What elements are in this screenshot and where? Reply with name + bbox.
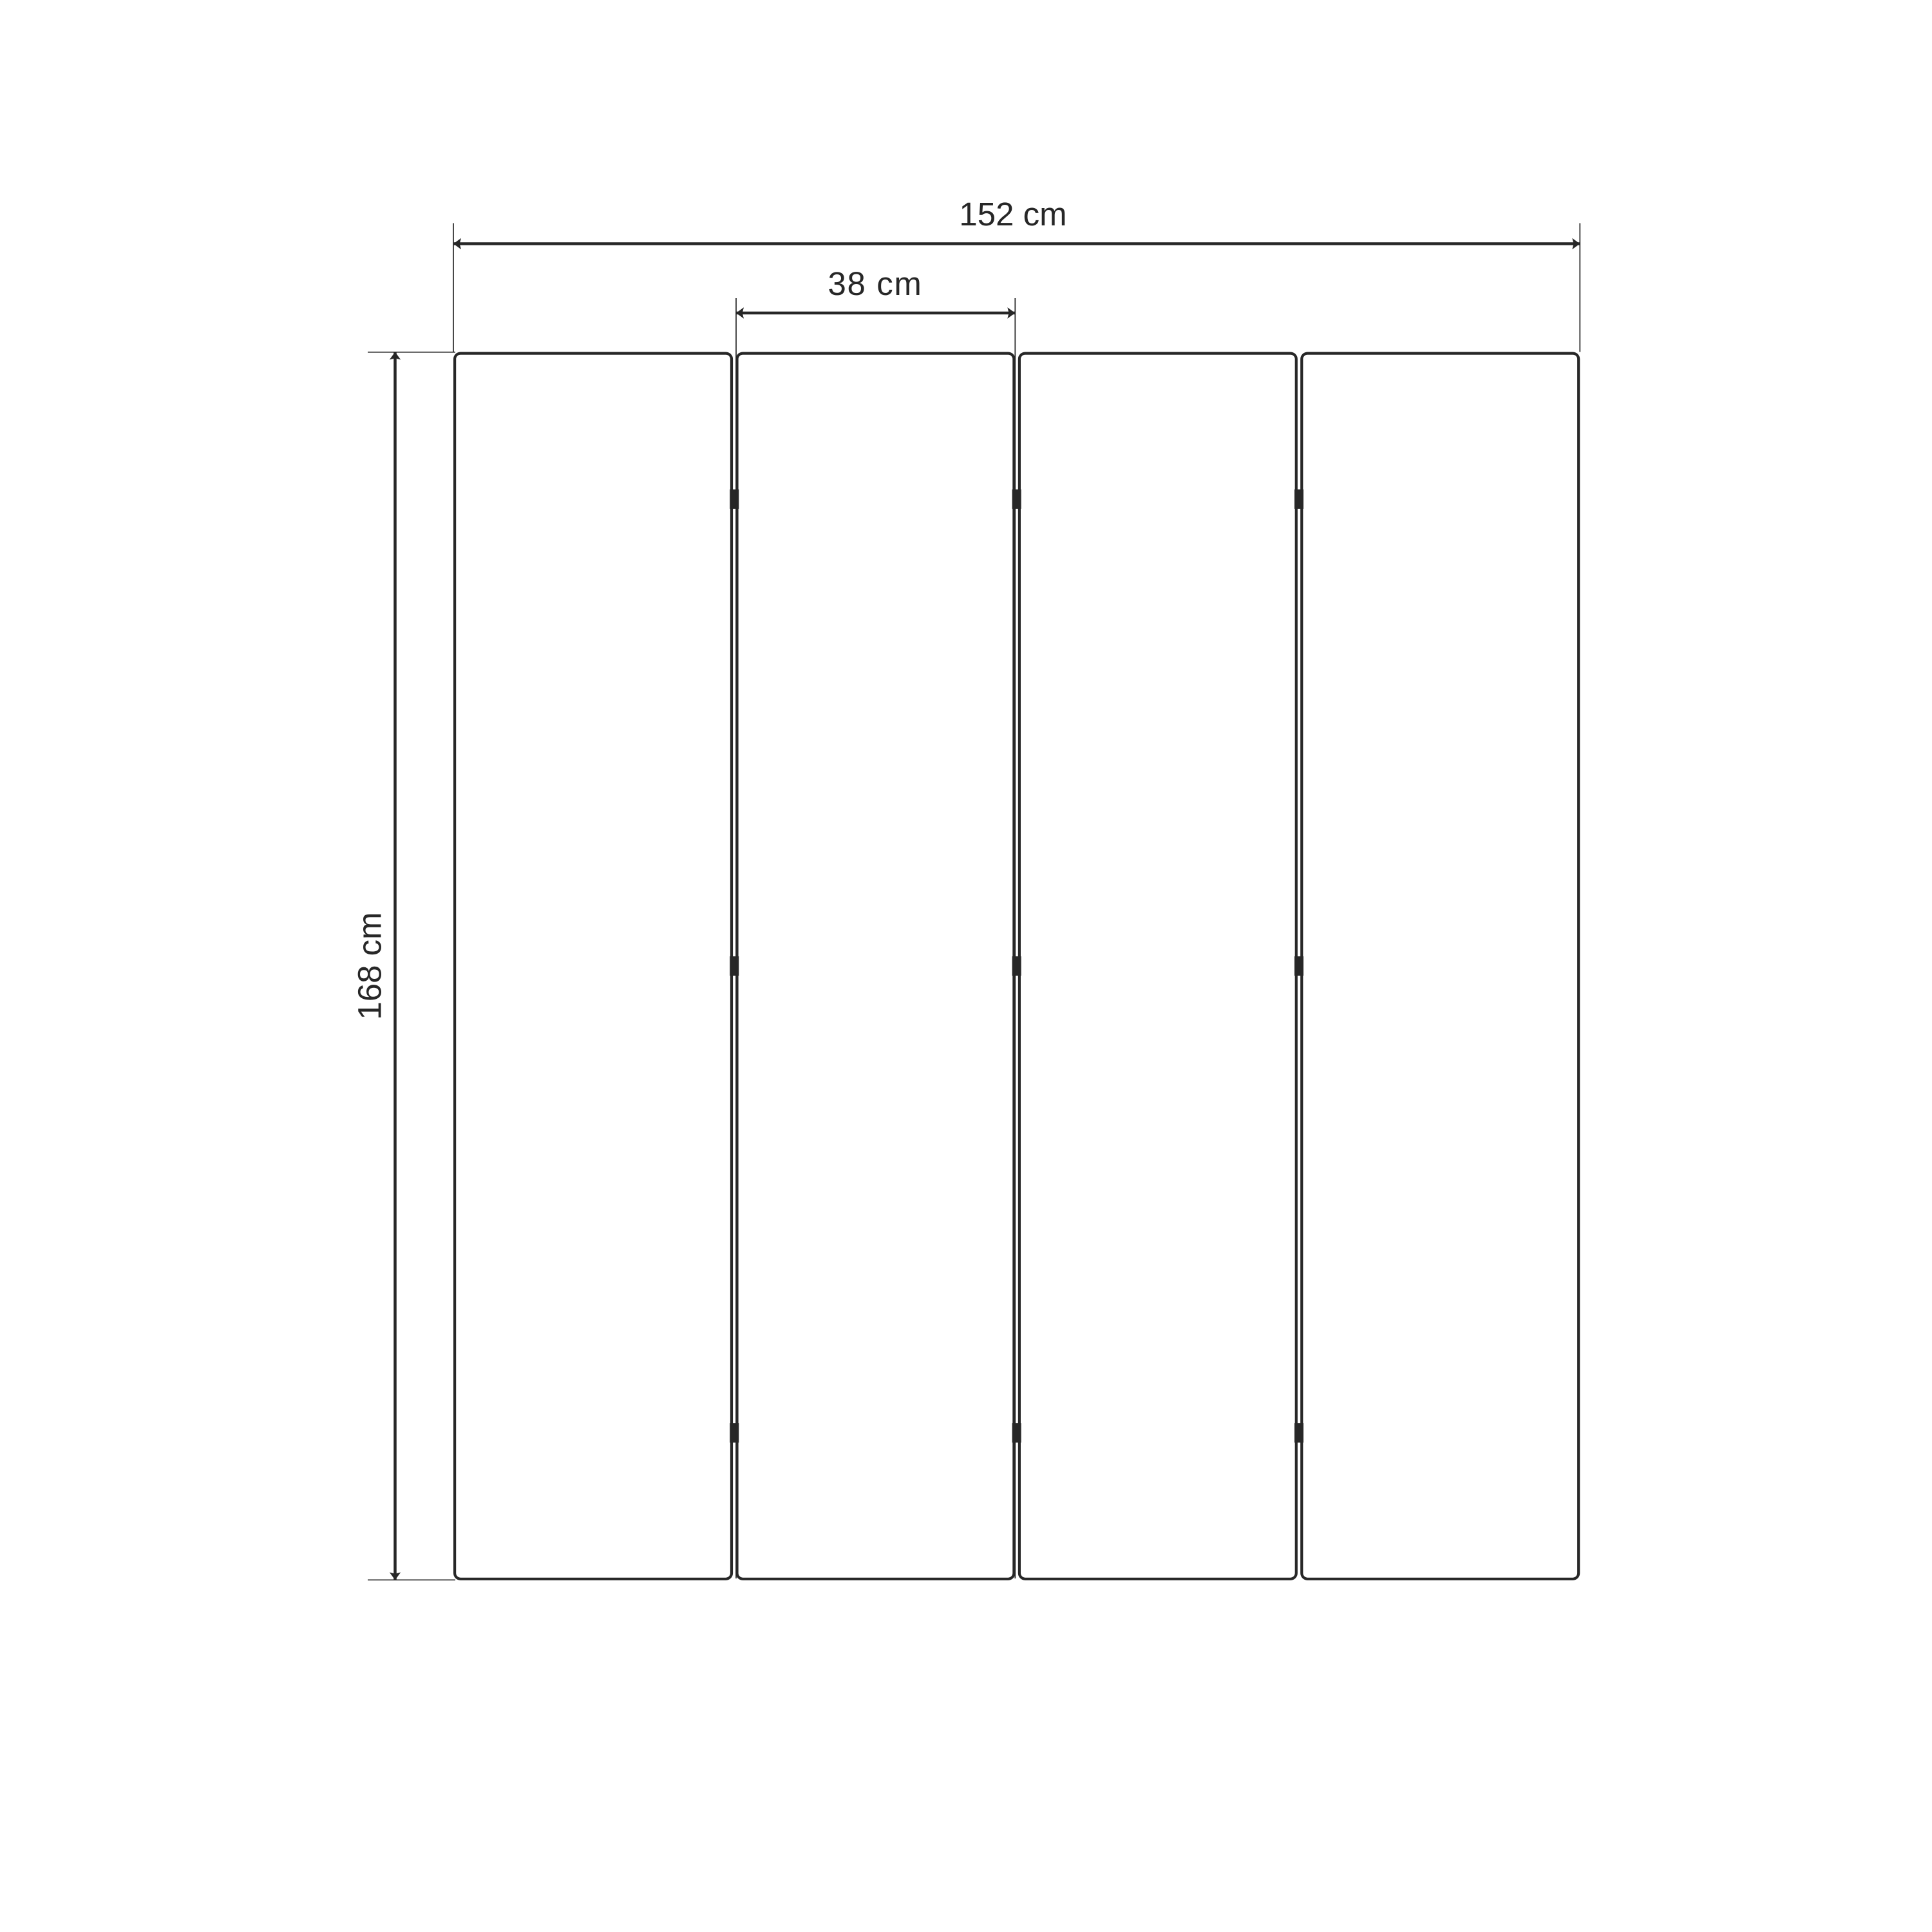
- svg-text:38 cm: 38 cm: [828, 265, 923, 302]
- svg-text:152 cm: 152 cm: [959, 196, 1066, 232]
- svg-text:168 cm: 168 cm: [352, 912, 388, 1019]
